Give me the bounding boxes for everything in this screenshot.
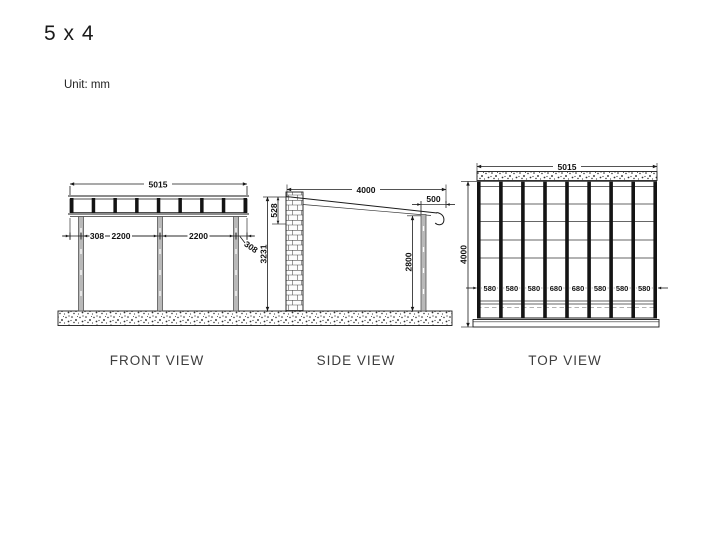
front-bay1-dim: 2200 (112, 231, 131, 241)
side-wall-height-dim: 3231 (259, 244, 269, 263)
top-total-width-dim: 5015 (558, 162, 577, 172)
top-depth-dim: 4000 (459, 245, 469, 264)
top-view-label: TOP VIEW (528, 353, 602, 368)
top-view-drawing: 5015 4000 (459, 162, 669, 327)
side-roof-drop-dim: 528 (269, 203, 279, 217)
side-view-drawing: 4000 500 528 3231 2800 (259, 185, 456, 312)
top-bay-dim: 580 (638, 284, 651, 293)
top-bay-dim: 680 (572, 284, 585, 293)
ground-slab (58, 311, 452, 326)
top-gutter-strip (473, 320, 659, 328)
top-wall-strip (477, 172, 657, 181)
top-bay-dim: 580 (616, 284, 629, 293)
front-total-width-dim: 5015 (149, 179, 168, 189)
front-left-offset-dim: 308 (90, 231, 104, 241)
top-bay-dim: 580 (594, 284, 607, 293)
top-bay-dim: 580 (528, 284, 541, 293)
top-bay-dim: 580 (484, 284, 497, 293)
side-roof-length-dim: 4000 (357, 185, 376, 195)
front-right-offset-dim: 308 (242, 239, 260, 255)
front-bay2-dim: 2200 (189, 231, 208, 241)
top-bay-dim: 680 (550, 284, 563, 293)
side-view-label: SIDE VIEW (317, 353, 396, 368)
front-view-drawing: 5015 308 (62, 179, 260, 311)
side-post-height-dim: 2800 (404, 252, 414, 271)
technical-drawing: 5015 308 (0, 0, 720, 554)
front-view-label: FRONT VIEW (110, 353, 205, 368)
side-overhang-dim: 500 (426, 194, 440, 204)
gutter-profile (435, 213, 444, 225)
top-bay-dim: 580 (506, 284, 519, 293)
side-brick-wall (286, 192, 303, 311)
